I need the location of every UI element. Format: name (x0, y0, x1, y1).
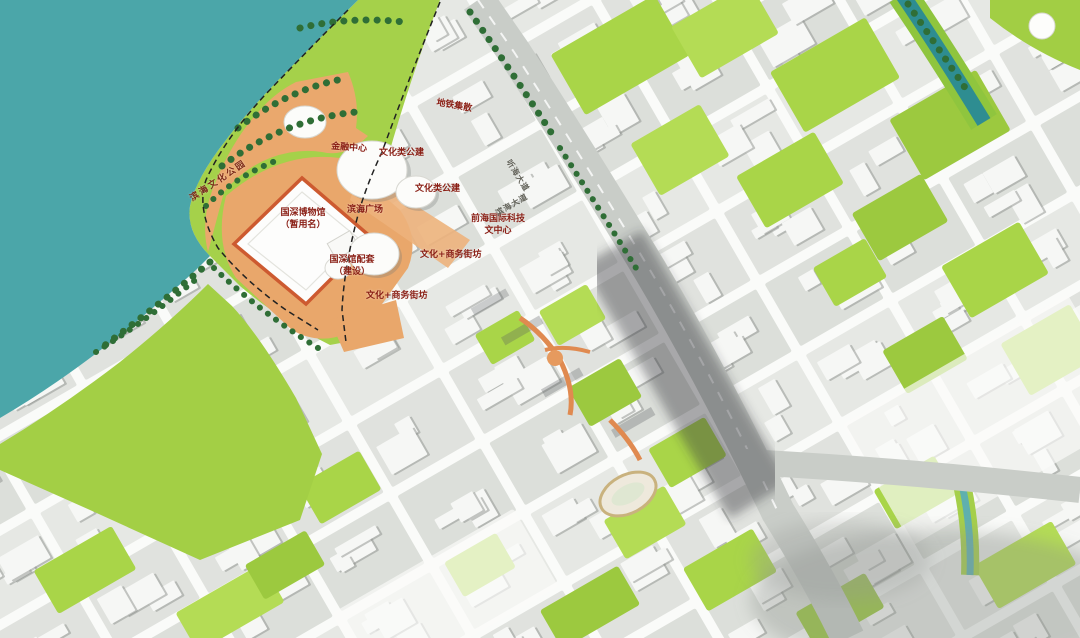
shadow-haze (750, 520, 930, 600)
tower-shadow (611, 407, 655, 438)
label-seaside-plaza: 滨海广场 (347, 205, 383, 217)
stadium-track (593, 463, 664, 525)
label-museum-support-name: 国深馆配套 (318, 255, 386, 267)
overpass-shadow (612, 248, 760, 500)
tower-shadow (471, 289, 510, 316)
map-overlay (0, 0, 1080, 638)
tower-shadow (541, 368, 584, 398)
label-finance-center: 金融中心 (331, 142, 368, 156)
label-culture-business-2: 文化+商务街坊 (366, 291, 428, 303)
round-building (1029, 13, 1055, 39)
pocket-plaza (547, 350, 563, 366)
label-museum-name: 国深博物馆 (264, 208, 342, 220)
masterplan-map: 地铁集散 金融中心 文化类公建 文化类公建 国深博物馆 （暂用名） 滨海广场 前… (0, 0, 1080, 638)
cross-road (745, 462, 1080, 490)
park-pavilion (284, 106, 326, 138)
label-museum-note: （暂用名） (264, 220, 342, 232)
label-culture-business-1: 文化+商务街坊 (420, 250, 482, 262)
label-museum-support-note: （建设） (318, 267, 386, 279)
label-intl-center-line2: 文中心 (456, 226, 540, 238)
label-cultural-public-2: 文化类公建 (415, 184, 460, 196)
label-cultural-public-1: 文化类公建 (379, 148, 424, 160)
label-museum: 国深博物馆 （暂用名） (264, 208, 342, 231)
label-museum-support: 国深馆配套 （建设） (318, 255, 386, 278)
pocket-park-paths (520, 318, 640, 460)
